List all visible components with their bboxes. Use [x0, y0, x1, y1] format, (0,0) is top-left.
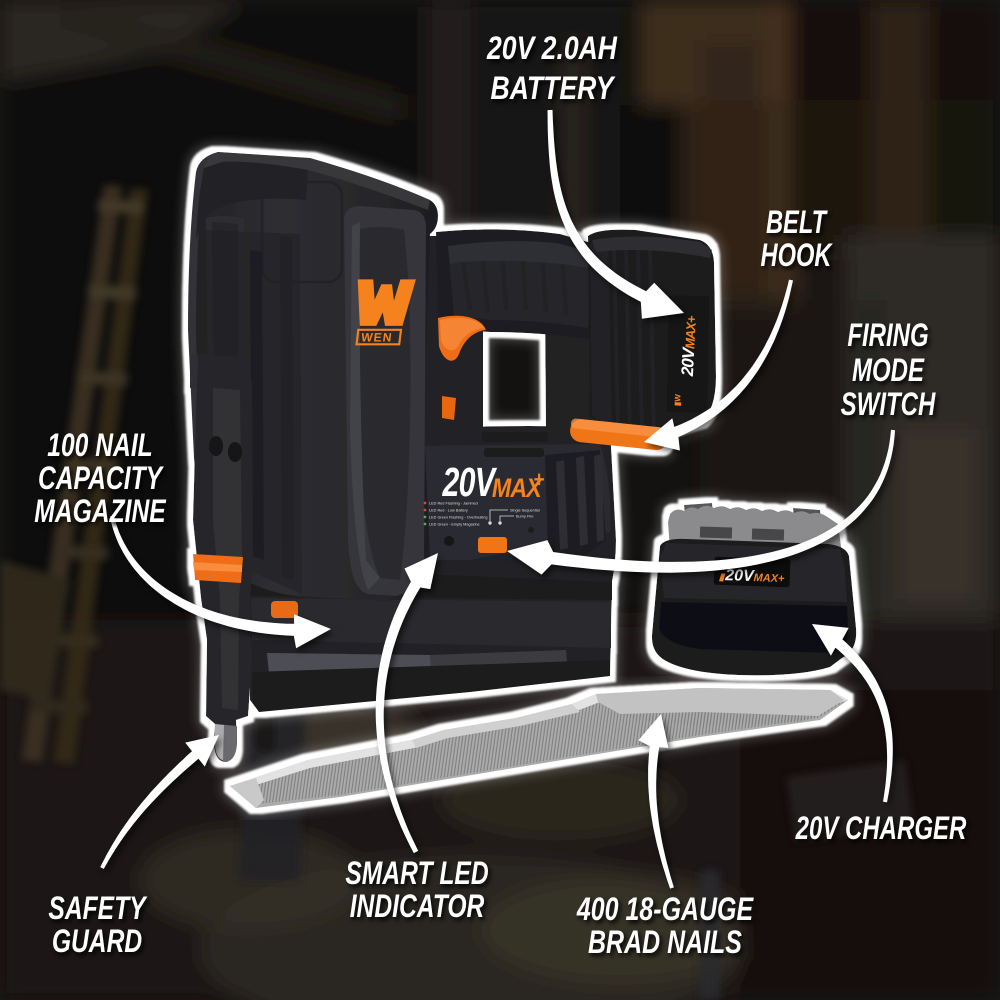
svg-text:LED Red - Low Battery: LED Red - Low Battery [429, 509, 468, 513]
svg-text:WEN: WEN [360, 330, 393, 344]
svg-text:Single Sequential: Single Sequential [510, 509, 540, 513]
svg-text:LED Green Flashing - Overheati: LED Green Flashing - Overheating [429, 516, 487, 520]
svg-text:▮W: ▮W [673, 394, 683, 407]
svg-text:LED Green - Empty Magazine: LED Green - Empty Magazine [429, 523, 480, 527]
svg-text:20V: 20V [442, 458, 498, 505]
svg-text:LED Red Flashing - Jammed: LED Red Flashing - Jammed [429, 502, 478, 506]
svg-text:+: + [533, 468, 544, 493]
svg-text:Bump Fire: Bump Fire [516, 515, 534, 519]
